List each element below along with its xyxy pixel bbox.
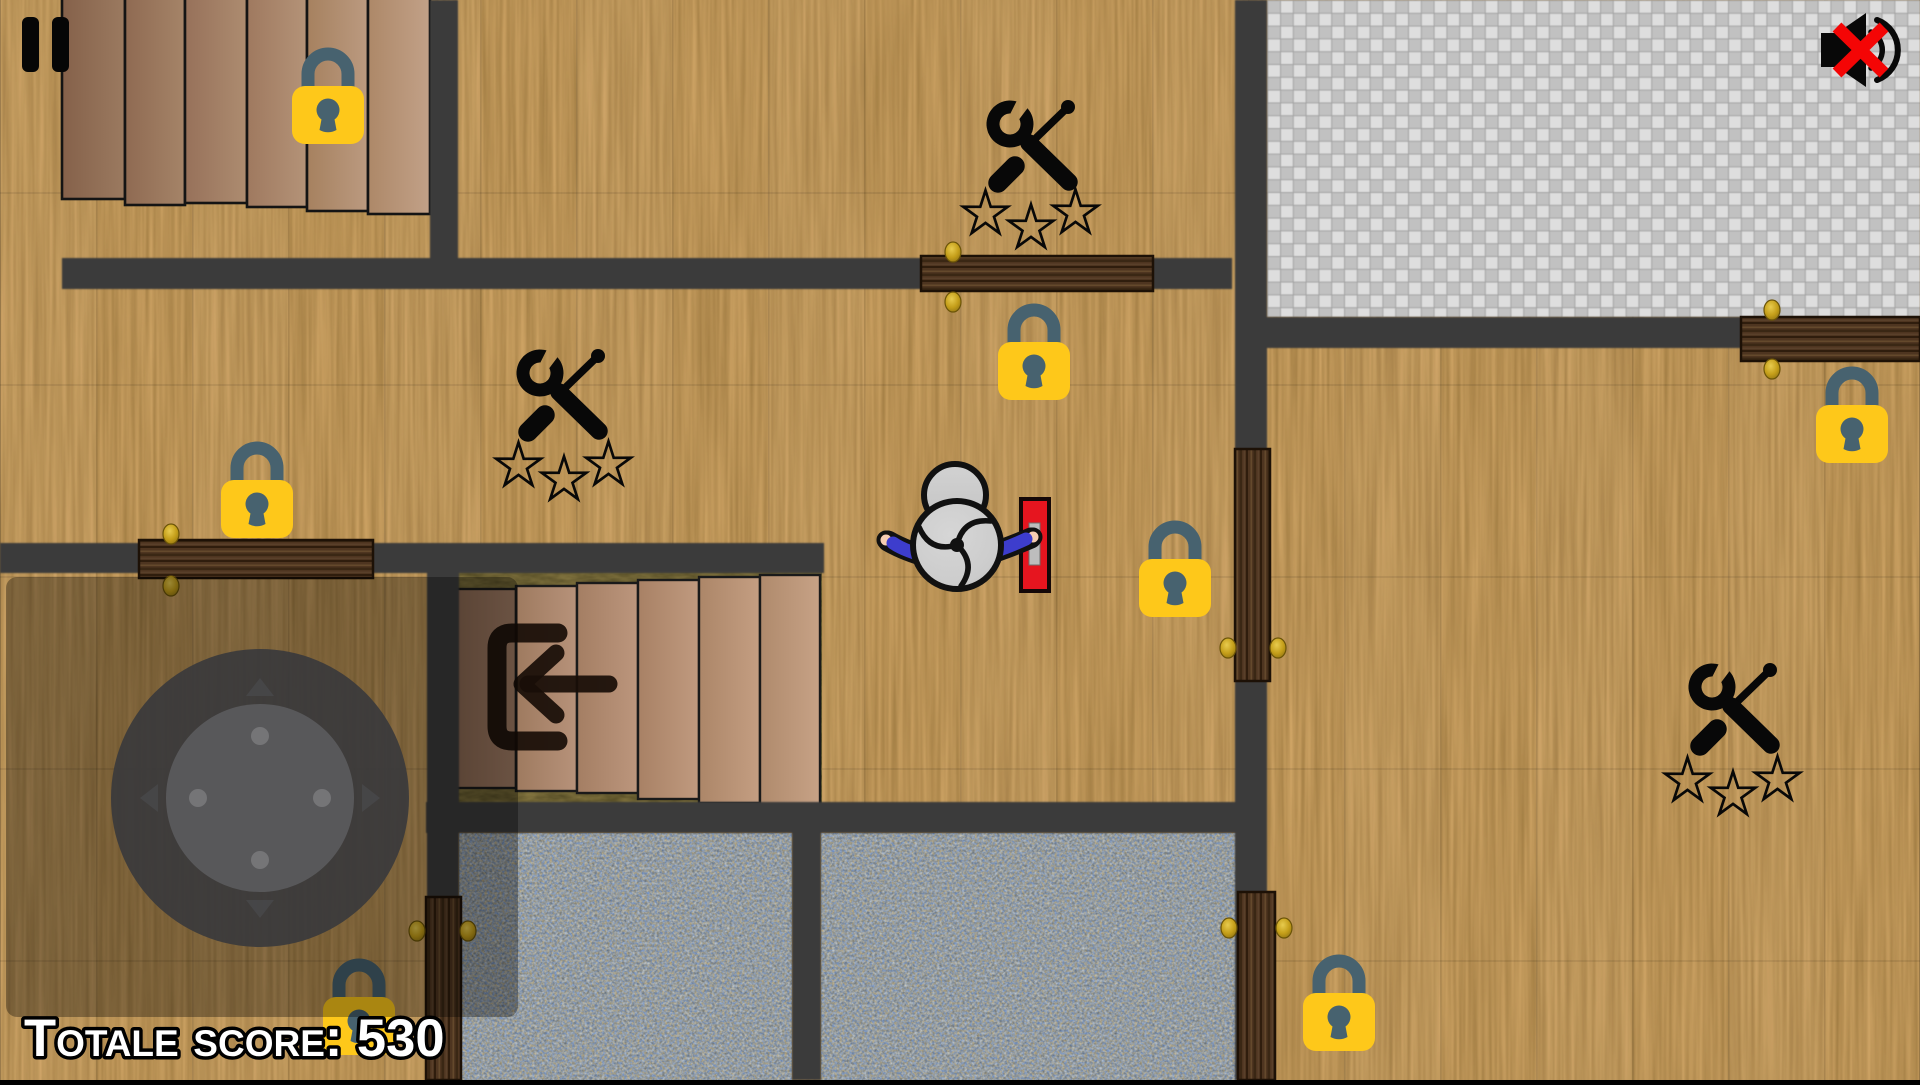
svg-text:Totale score: 530: Totale score: 530: [24, 1009, 445, 1068]
